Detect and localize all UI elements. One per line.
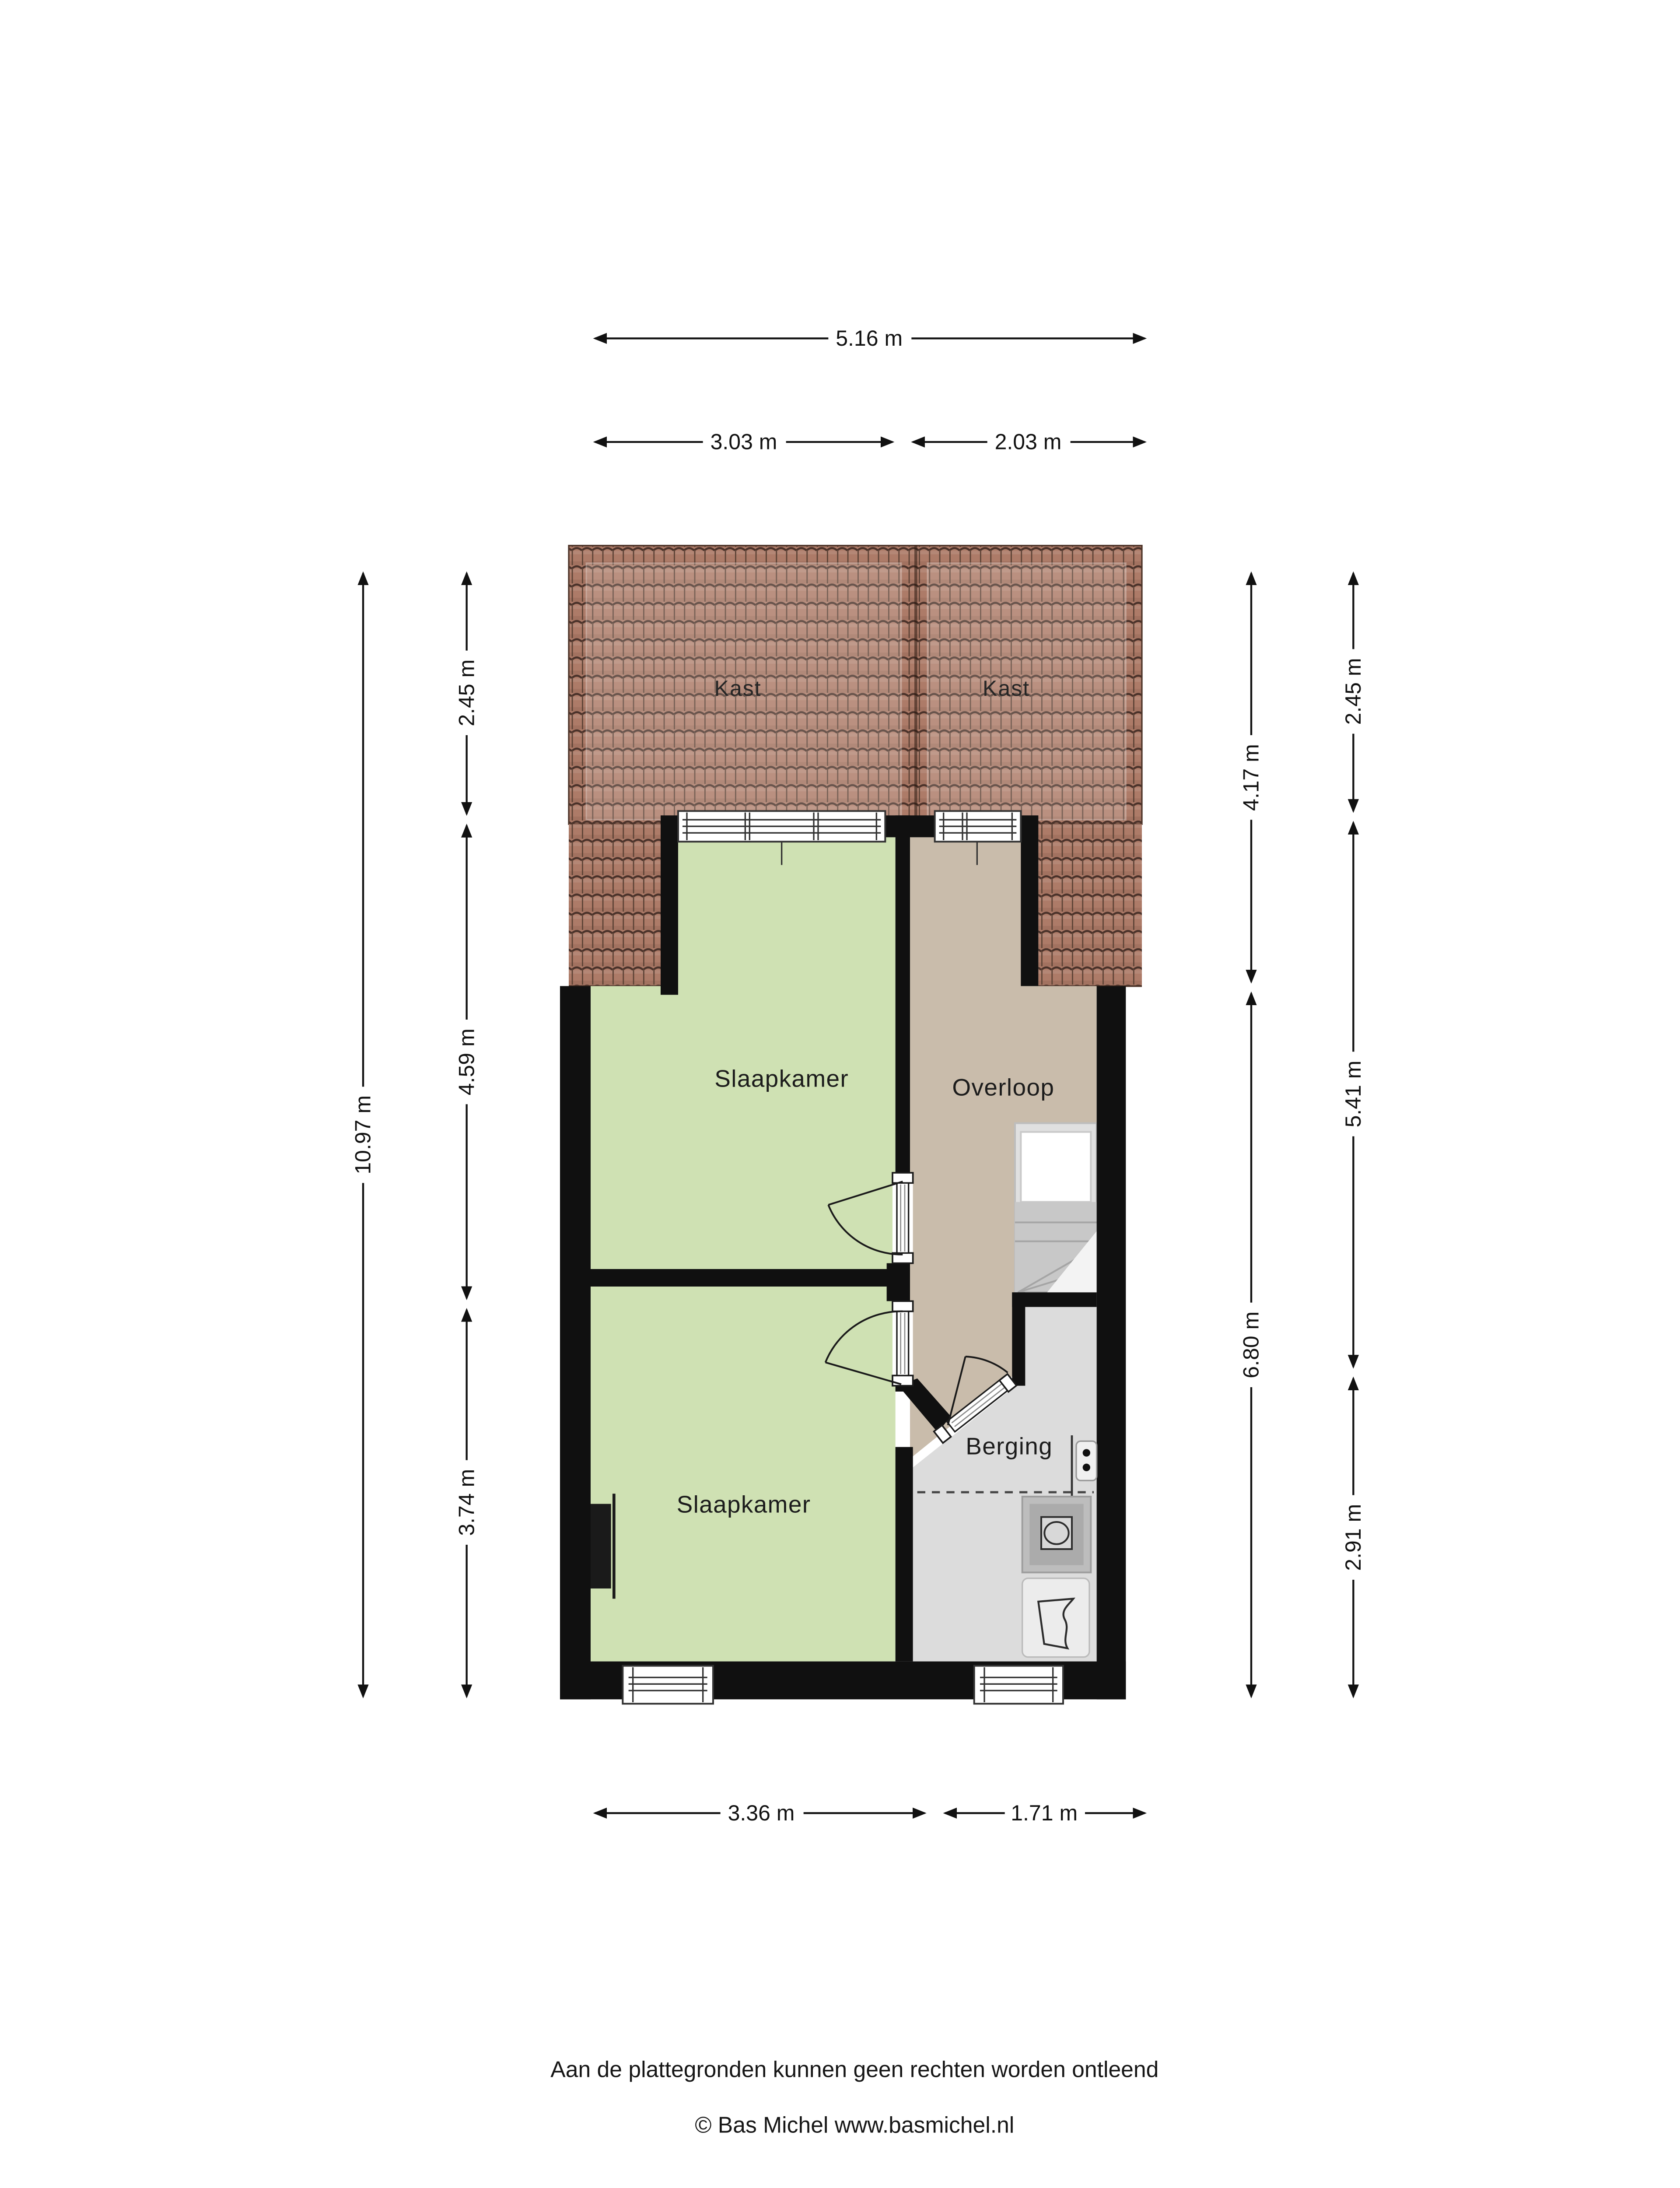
svg-text:2.03 m: 2.03 m [995,430,1062,454]
dim-top-right: 2.03 m [913,428,1145,455]
storage-label: Berging [966,1432,1053,1459]
dim-left-seg-0: 2.45 m [453,573,480,814]
laundry-basket-icon [1022,1578,1089,1657]
stairs [1015,1123,1097,1293]
dim-right-outer-2: 2.91 m [1340,1378,1367,1697]
svg-text:5.41 m: 5.41 m [1341,1061,1365,1128]
dim-top-total: 5.16 m [595,324,1145,351]
svg-text:2.45 m: 2.45 m [1341,658,1365,725]
wall-between-bedrooms [591,1269,896,1287]
bedroom-upper-label: Slaapkamer [714,1065,849,1092]
wall-storage-north-pier [1012,1292,1025,1385]
wall-west-outer [560,986,591,1699]
svg-text:2.91 m: 2.91 m [1341,1504,1365,1571]
dim-right-outer-1: 5.41 m [1340,823,1367,1367]
footer-copyright: © Bas Michel www.basmichel.nl [695,2112,1014,2137]
window-bedroom-lower [623,1666,713,1704]
dim-right-inner-1: 6.80 m [1237,993,1265,1697]
boiler-icon [1076,1441,1097,1480]
dim-right-inner-0: 4.17 m [1237,573,1265,982]
stairs-landing [1021,1132,1091,1202]
wall-storage-west [896,1447,913,1662]
landing-label: Overloop [952,1073,1054,1101]
dim-right-outer-0: 2.45 m [1340,573,1367,811]
svg-text:4.17 m: 4.17 m [1239,744,1263,811]
bedroom-lower-label: Slaapkamer [677,1491,811,1518]
dim-bottom-left: 3.36 m [595,1799,924,1826]
svg-text:10.97 m: 10.97 m [351,1095,375,1175]
svg-text:6.80 m: 6.80 m [1239,1311,1263,1378]
dim-left-seg-2: 3.74 m [453,1310,480,1696]
roof-strip-left [569,824,675,986]
dim-bottom-right: 1.71 m [945,1799,1145,1826]
washing-machine-icon [1022,1497,1091,1572]
kast-left-label: Kast [714,676,762,701]
floorplan-canvas: Kast Kast [0,0,1680,2188]
dim-left-total: 10.97 m [349,573,377,1697]
svg-text:3.36 m: 3.36 m [728,1801,795,1825]
svg-text:3.03 m: 3.03 m [710,430,777,454]
footer-disclaimer: Aan de plattegronden kunnen geen rechten… [550,2057,1158,2082]
window-storage [974,1666,1063,1704]
footer: Aan de plattegronden kunnen geen rechten… [550,2057,1158,2138]
wall-north-left-pier [661,815,678,995]
wall-east-outer [1097,986,1126,1699]
svg-text:3.74 m: 3.74 m [454,1469,479,1536]
wall-divider-upper [896,815,910,1173]
kast-right-label: Kast [983,676,1030,701]
svg-text:2.45 m: 2.45 m [454,659,479,726]
svg-text:5.16 m: 5.16 m [836,326,903,351]
radiator [591,1504,611,1588]
dim-left-seg-1: 4.59 m [453,826,480,1298]
dim-top-left: 3.03 m [595,428,892,455]
svg-text:1.71 m: 1.71 m [1011,1801,1078,1825]
wall-landing-east-upper [1021,815,1038,986]
roof-strip-right [1036,824,1142,986]
svg-text:4.59 m: 4.59 m [454,1028,479,1095]
